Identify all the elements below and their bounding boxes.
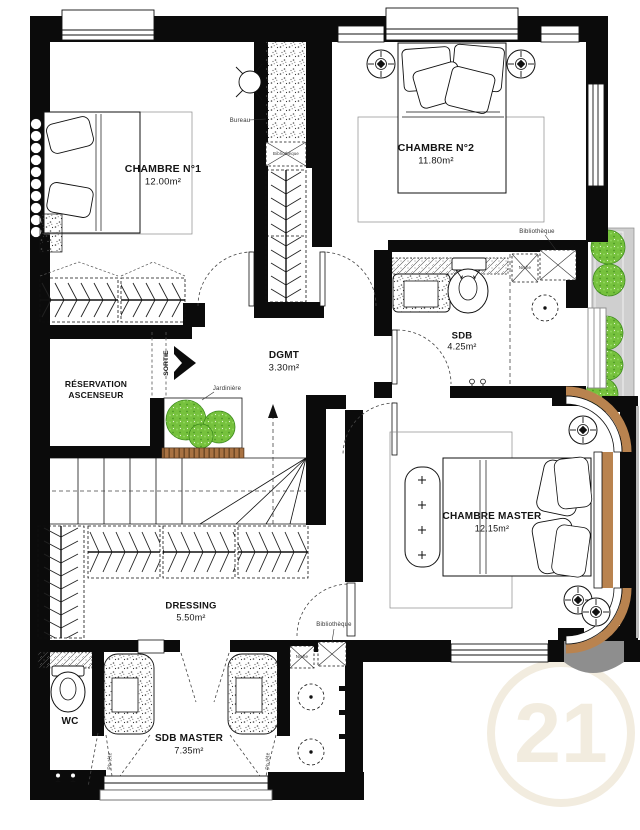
room-label-master: CHAMBRE MASTER xyxy=(443,512,542,522)
stair-direction-arrow-icon xyxy=(268,404,278,418)
bush-icon xyxy=(189,424,213,448)
room-area-chambre1: 12.00m² xyxy=(145,177,181,187)
room-area-sdb: 4.25m² xyxy=(447,343,476,352)
room-label-dgmt: DGMT xyxy=(269,351,299,361)
bush-icon xyxy=(593,264,625,296)
bed-chambre2 xyxy=(398,43,506,193)
room-area-chambre2: 11.80m² xyxy=(418,156,454,166)
window-top-right xyxy=(386,8,518,40)
annotation-pb-tete-left: Pb tête xyxy=(109,752,114,769)
shower-spot-icon xyxy=(298,739,324,765)
jardiniere-planter xyxy=(162,392,244,458)
window-top-left xyxy=(62,10,154,40)
annotation-niche-sdb-master: Niche xyxy=(296,655,309,660)
closet-column xyxy=(266,170,306,302)
room-label-chambre2: CHAMBRE N°2 xyxy=(398,143,474,154)
sortie-arrow-icon xyxy=(174,346,196,380)
wardrobe-chambre1 xyxy=(40,262,185,322)
door-arc-sdb xyxy=(397,330,451,384)
bay-fitting-icon xyxy=(582,598,610,626)
shower-spot-icon xyxy=(298,684,324,710)
chambre2-furniture xyxy=(358,43,544,222)
annotation-jardiniere: Jardinière xyxy=(213,386,241,392)
chair-icon xyxy=(239,71,261,93)
annotation-niche-sdb: Niche xyxy=(519,266,532,271)
dressing-closets xyxy=(38,526,308,638)
door-arc-chambre2 xyxy=(322,252,376,306)
room-area-sdb-master: 7.35m² xyxy=(174,747,203,756)
bureau-desk xyxy=(236,42,306,140)
room-label-chambre1: CHAMBRE N°1 xyxy=(125,164,201,175)
annotation-bibliotheque-box: Bibliothèque xyxy=(273,152,299,156)
bench-master xyxy=(405,467,440,567)
room-label-sdb-master: SDB MASTER xyxy=(155,734,223,744)
room-label-ascenseur-2: ASCENSEUR xyxy=(68,391,123,400)
annotation-sortie: SORTIE xyxy=(164,350,171,375)
pillow-icon xyxy=(553,456,592,509)
room-area-dgmt: 3.30m² xyxy=(269,363,300,373)
window-sill xyxy=(100,790,272,800)
window-east-chambre2 xyxy=(588,84,604,186)
room-label-sdb: SDB xyxy=(452,331,473,341)
bay-fitting-icon xyxy=(569,416,597,444)
annotation-bureau: Bureau xyxy=(230,118,251,124)
bedside-table-icon xyxy=(507,50,535,78)
toilet-sdb xyxy=(448,258,488,313)
room-area-dressing: 5.50m² xyxy=(176,614,205,623)
door-arc-dressing-master xyxy=(297,584,349,636)
annotation-pb-tete-right: Pb tête xyxy=(267,752,272,769)
vanity-left xyxy=(104,654,154,734)
toilet-wc xyxy=(51,666,85,712)
annotation-bibliotheque-top: Bibliothèque xyxy=(519,229,554,235)
plan-drawing xyxy=(0,0,640,830)
room-area-master: 12.15m² xyxy=(475,525,509,534)
window-master-south xyxy=(451,644,548,662)
room-label-dressing: DRESSING xyxy=(165,601,216,611)
room-label-wc: WC xyxy=(61,717,78,727)
vanity-right xyxy=(228,654,278,734)
shower-head-icon xyxy=(532,295,558,321)
bedside-table-icon xyxy=(367,50,395,78)
annotation-bibliotheque-bottom: Bibliothèque xyxy=(316,622,351,628)
vanity-sdb xyxy=(393,274,450,312)
window-east-balcony xyxy=(588,308,606,388)
floor-plan: 21 xyxy=(0,0,640,830)
room-label-ascenseur-1: RÉSERVATION xyxy=(65,380,127,389)
door-arc-chambre1 xyxy=(198,252,252,306)
wood-deck xyxy=(162,448,244,458)
pillow-icon xyxy=(551,524,592,578)
